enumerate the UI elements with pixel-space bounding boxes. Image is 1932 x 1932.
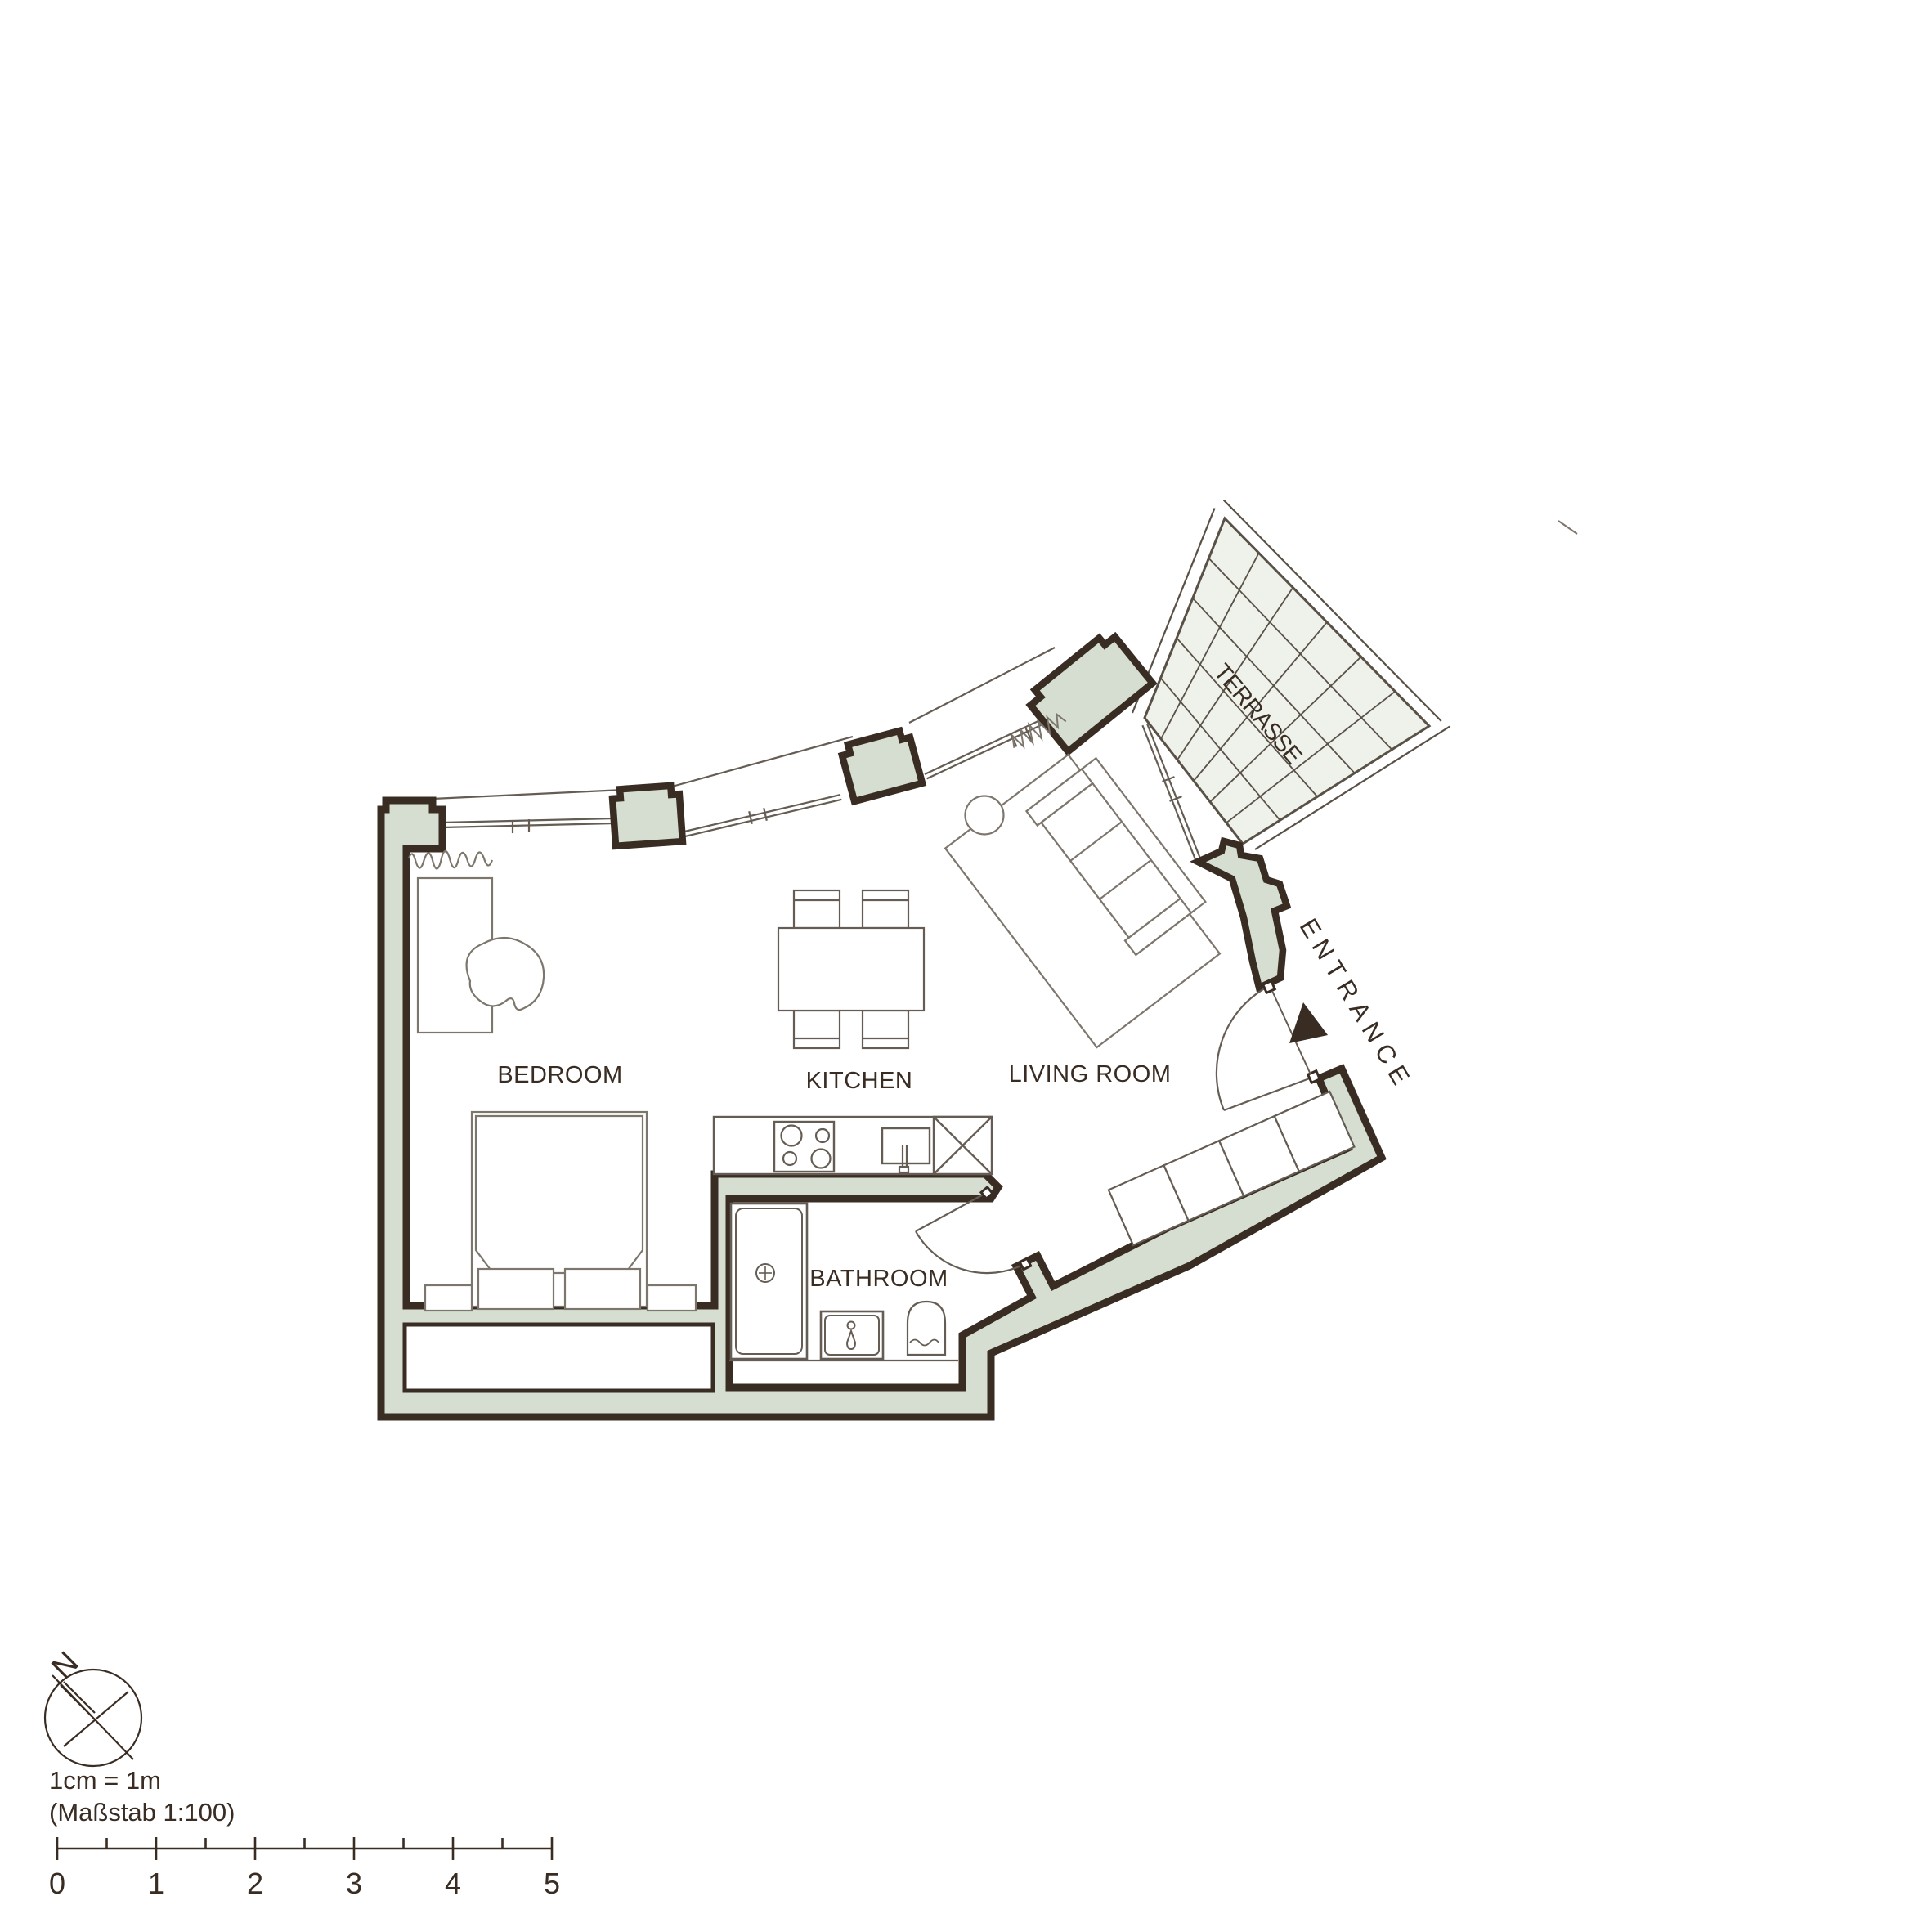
svg-text:LIVING ROOM: LIVING ROOM — [1009, 1061, 1172, 1087]
svg-text:BATHROOM: BATHROOM — [809, 1266, 948, 1292]
svg-text:BEDROOM: BEDROOM — [497, 1062, 622, 1088]
svg-text:1cm = 1m: 1cm = 1m — [49, 1766, 161, 1795]
svg-text:5: 5 — [544, 1867, 560, 1900]
svg-text:0: 0 — [49, 1867, 65, 1900]
svg-text:3: 3 — [346, 1867, 362, 1900]
svg-text:KITCHEN: KITCHEN — [806, 1068, 913, 1094]
svg-text:(Maßstab 1:100): (Maßstab 1:100) — [49, 1798, 235, 1827]
svg-text:4: 4 — [445, 1867, 461, 1900]
svg-text:1: 1 — [148, 1867, 164, 1900]
svg-text:2: 2 — [247, 1867, 263, 1900]
